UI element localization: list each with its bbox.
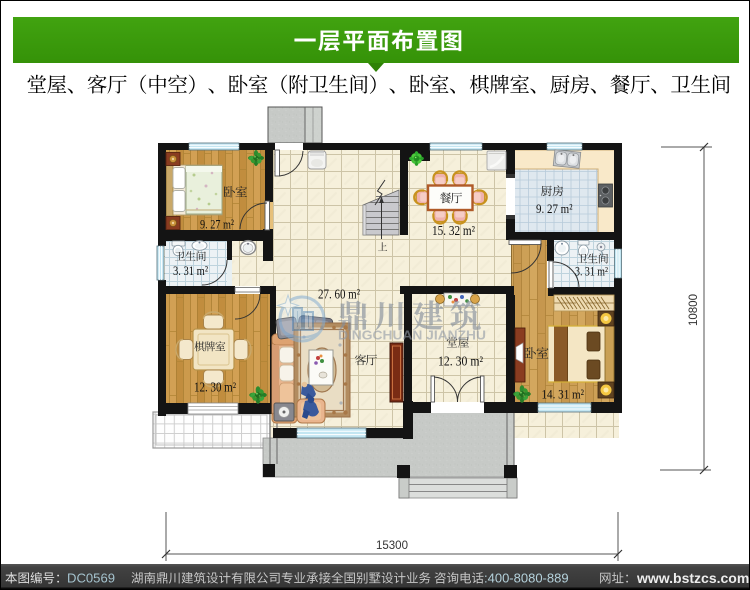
svg-text:3. 31 m²: 3. 31 m² <box>173 263 208 278</box>
svg-text:DINGCHUAN JIANZHU: DINGCHUAN JIANZHU <box>338 329 486 343</box>
svg-text:www.bstzcs.com: www.bstzcs.com <box>636 570 749 586</box>
svg-text:14. 31 m²: 14. 31 m² <box>542 387 585 402</box>
svg-text:10800: 10800 <box>688 294 700 326</box>
svg-text:27. 60 m²: 27. 60 m² <box>318 287 360 302</box>
svg-text:9. 27 m²: 9. 27 m² <box>536 201 573 216</box>
svg-text::400-8080-889: :400-8080-889 <box>484 571 569 586</box>
svg-text:DC0569: DC0569 <box>67 572 115 586</box>
svg-text:15300: 15300 <box>376 540 408 552</box>
svg-text:12. 30 m²: 12. 30 m² <box>438 353 483 368</box>
svg-text:9. 27 m²: 9. 27 m² <box>200 217 234 232</box>
svg-text:15. 32 m²: 15. 32 m² <box>432 223 475 238</box>
svg-text:12. 30 m²: 12. 30 m² <box>194 380 236 395</box>
svg-text:3. 31 m²: 3. 31 m² <box>575 265 608 279</box>
